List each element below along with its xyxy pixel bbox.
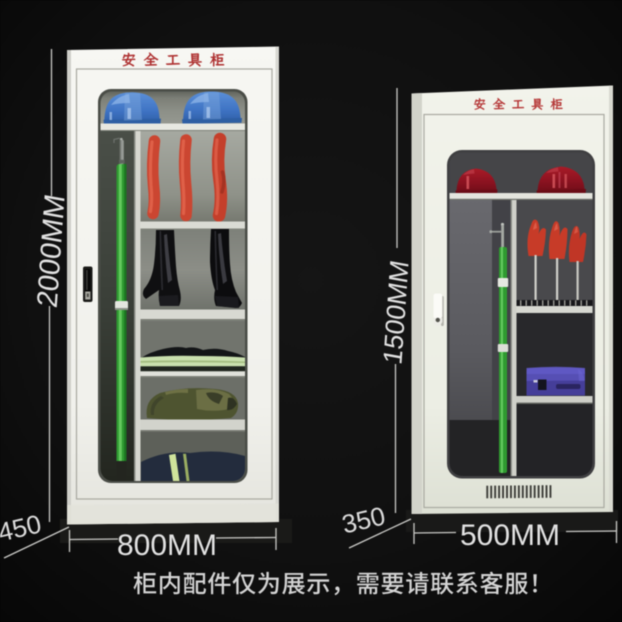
- svg-text:800MM: 800MM: [117, 529, 217, 562]
- svg-text:500MM: 500MM: [460, 519, 560, 552]
